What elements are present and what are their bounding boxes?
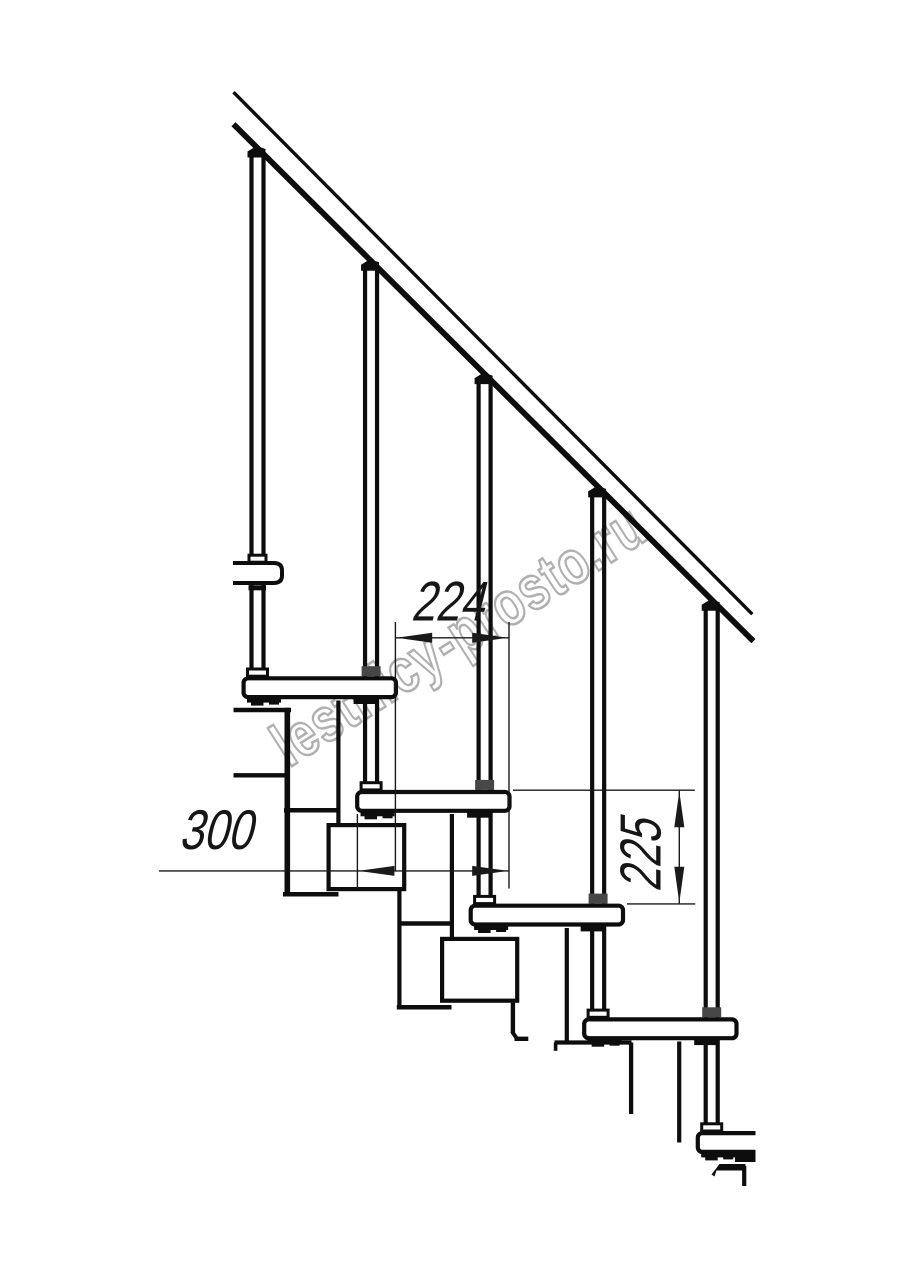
svg-text:300: 300	[176, 799, 264, 861]
svg-text:224: 224	[408, 570, 496, 632]
